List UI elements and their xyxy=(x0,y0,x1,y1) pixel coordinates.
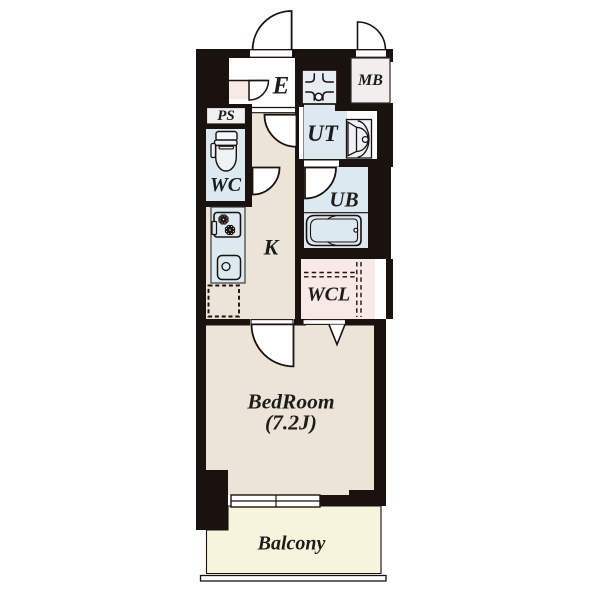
svg-text:PS: PS xyxy=(217,108,235,124)
svg-text:UB: UB xyxy=(329,188,358,212)
svg-text:E: E xyxy=(272,73,290,100)
svg-text:K: K xyxy=(263,235,280,260)
svg-text:MB: MB xyxy=(357,72,383,89)
svg-text:Balcony: Balcony xyxy=(257,533,326,555)
svg-text:WCL: WCL xyxy=(307,284,350,306)
svg-text:UT: UT xyxy=(307,121,339,146)
svg-text:WC: WC xyxy=(210,174,242,196)
svg-text:(7.2J): (7.2J) xyxy=(265,411,317,435)
